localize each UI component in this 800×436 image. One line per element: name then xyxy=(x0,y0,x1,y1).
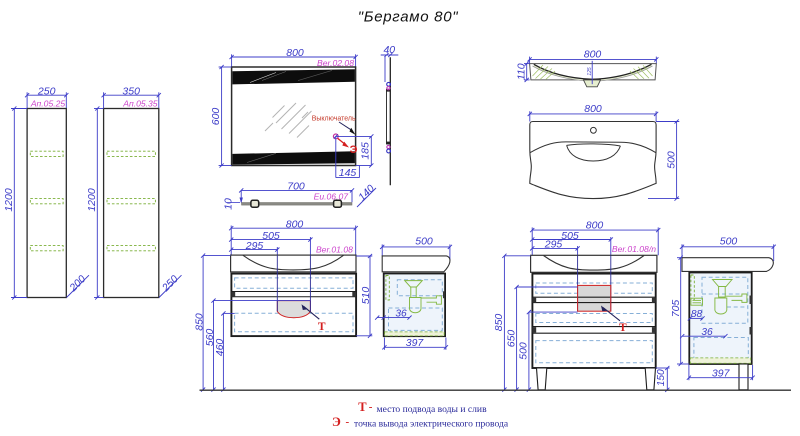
svg-text:150: 150 xyxy=(656,369,667,386)
svg-text:110: 110 xyxy=(515,63,527,80)
svg-text:505: 505 xyxy=(561,230,579,242)
svg-text:397: 397 xyxy=(406,337,425,349)
svg-text:850: 850 xyxy=(194,313,206,331)
svg-text:"Бергамо 80": "Бергамо 80" xyxy=(358,9,459,26)
svg-text:800: 800 xyxy=(584,103,602,115)
svg-text:295: 295 xyxy=(544,239,563,251)
svg-text:40: 40 xyxy=(383,44,395,56)
svg-text:700: 700 xyxy=(287,180,305,192)
svg-text:500: 500 xyxy=(665,151,677,169)
svg-text:Eu.06.07: Eu.06.07 xyxy=(314,191,350,201)
svg-text:250: 250 xyxy=(37,85,56,97)
svg-text:1200: 1200 xyxy=(86,188,98,212)
svg-text:Ber.01.08: Ber.01.08 xyxy=(316,244,353,254)
svg-text:510: 510 xyxy=(360,287,372,305)
svg-text:Т: Т xyxy=(619,322,627,334)
svg-text:Т: Т xyxy=(318,321,326,333)
svg-text:397: 397 xyxy=(712,367,731,379)
svg-text:36: 36 xyxy=(395,308,407,319)
svg-text:460: 460 xyxy=(214,339,226,357)
svg-text:600: 600 xyxy=(210,108,222,126)
svg-text:500: 500 xyxy=(415,236,433,248)
svg-text:145: 145 xyxy=(339,167,357,179)
svg-text:точка вывода электрического пр: точка вывода электрического провода xyxy=(354,418,509,429)
svg-text:850: 850 xyxy=(493,314,505,332)
svg-text:Выключатель: Выключатель xyxy=(312,115,356,122)
svg-text:Э: Э xyxy=(350,144,358,156)
svg-text:800: 800 xyxy=(586,219,604,231)
svg-text:500: 500 xyxy=(720,236,738,248)
svg-text:место подвода воды и слив: место подвода воды и слив xyxy=(377,404,488,415)
svg-text:350: 350 xyxy=(122,85,140,97)
svg-text:10: 10 xyxy=(223,198,235,210)
svg-text:Ber.01.08/n: Ber.01.08/n xyxy=(612,244,656,254)
svg-text:500: 500 xyxy=(518,342,530,360)
svg-text:88: 88 xyxy=(691,309,703,320)
svg-text:185: 185 xyxy=(360,142,372,160)
svg-text:125: 125 xyxy=(587,67,593,76)
svg-text:Ап.05.25: Ап.05.25 xyxy=(30,99,66,109)
svg-text:505: 505 xyxy=(262,230,280,242)
svg-text:295: 295 xyxy=(245,240,264,252)
svg-text:-: - xyxy=(369,401,373,413)
svg-text:-: - xyxy=(346,416,350,428)
svg-text:650: 650 xyxy=(505,330,517,348)
svg-text:Т: Т xyxy=(358,400,367,414)
svg-text:36: 36 xyxy=(701,327,713,338)
svg-text:705: 705 xyxy=(670,300,682,318)
svg-text:800: 800 xyxy=(286,47,304,59)
svg-text:1200: 1200 xyxy=(3,188,15,212)
svg-text:800: 800 xyxy=(584,48,602,60)
svg-text:Э: Э xyxy=(332,414,341,429)
svg-text:Ап.05.35: Ап.05.35 xyxy=(122,99,158,109)
svg-text:800: 800 xyxy=(286,218,304,230)
